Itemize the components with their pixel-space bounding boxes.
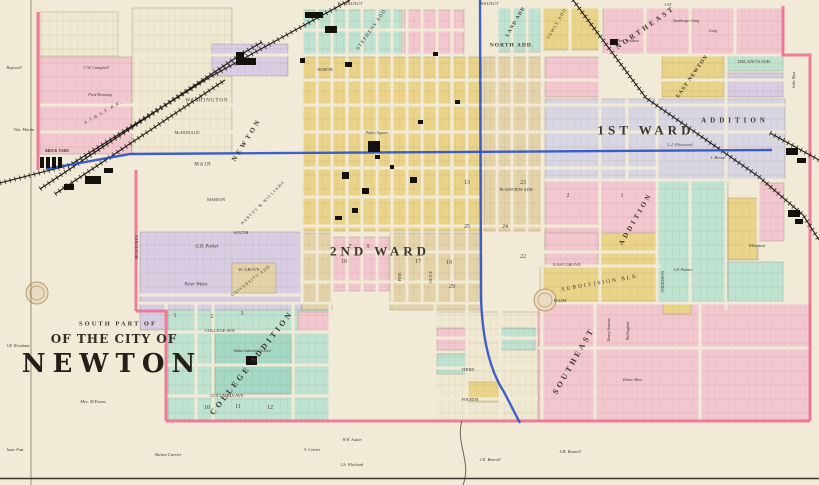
building-footprint xyxy=(788,210,800,217)
building-footprint xyxy=(797,158,806,163)
building-footprint xyxy=(433,52,438,56)
building-footprint xyxy=(610,39,618,45)
building-footprint xyxy=(335,216,342,220)
lot-lines xyxy=(600,233,657,265)
building-footprint xyxy=(325,26,337,33)
building-footprint xyxy=(455,100,460,104)
building-footprint xyxy=(786,148,798,155)
building-footprint xyxy=(390,165,394,169)
building-footprint xyxy=(795,219,803,224)
building-footprint xyxy=(345,62,352,67)
lot-lines xyxy=(758,183,784,241)
lot-lines xyxy=(298,312,330,332)
lot-lines xyxy=(545,233,598,265)
lot-lines xyxy=(543,8,601,50)
building-footprint xyxy=(342,172,349,179)
lot-lines xyxy=(232,263,276,293)
lot-lines xyxy=(538,303,810,420)
building-footprint xyxy=(40,157,44,168)
building-footprint xyxy=(236,52,244,65)
lot-lines xyxy=(658,181,728,303)
lot-lines xyxy=(726,55,783,71)
lot-lines xyxy=(497,8,541,52)
lot-lines xyxy=(726,73,783,97)
building-footprint xyxy=(52,157,56,168)
building-footprint xyxy=(418,120,423,124)
building-footprint xyxy=(368,141,380,152)
lot-lines xyxy=(140,232,302,294)
lot-lines xyxy=(603,8,783,54)
building-footprint xyxy=(46,157,50,168)
building-footprint xyxy=(246,356,257,365)
building-footprint xyxy=(375,155,380,159)
building-footprint xyxy=(410,177,417,183)
lot-lines xyxy=(545,57,600,97)
lot-lines xyxy=(728,198,758,260)
lot-lines xyxy=(404,10,464,55)
building-footprint xyxy=(362,188,369,194)
building-footprint xyxy=(85,176,101,184)
lot-lines xyxy=(662,55,724,97)
lot-lines xyxy=(663,303,691,314)
plat-map-newton: SOUTH PART OF OF THE CITY OF NEWTON 1ST … xyxy=(0,0,819,485)
lot-lines xyxy=(40,12,118,56)
building-footprint xyxy=(104,168,113,173)
building-footprint xyxy=(58,157,62,168)
surveyor-seal xyxy=(534,289,556,311)
surveyor-seal xyxy=(26,282,48,304)
building-footprint xyxy=(305,12,323,18)
lot-lines xyxy=(437,354,467,374)
building-footprint xyxy=(64,184,74,190)
building-footprint xyxy=(300,58,305,63)
building-footprint xyxy=(352,208,358,213)
map-canvas xyxy=(0,0,819,485)
